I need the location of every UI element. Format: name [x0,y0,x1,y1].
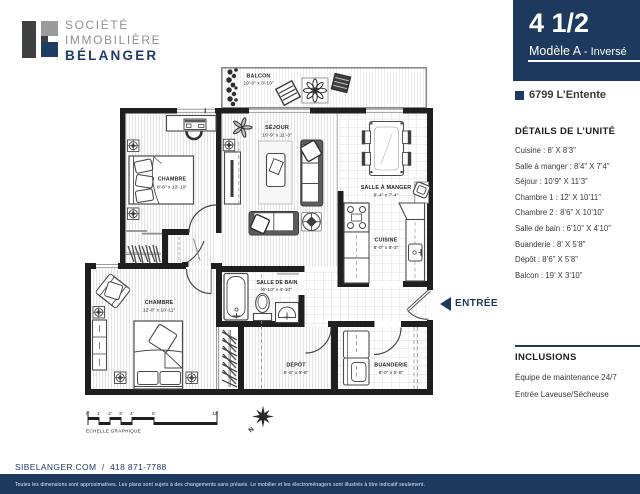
svg-text:BALCON: BALCON [247,74,271,80]
svg-text:SÉJOUR: SÉJOUR [265,123,289,131]
svg-text:DÉPÔT: DÉPÔT [286,361,306,369]
svg-text:ÉCHELLE GRAPHIQUE: ÉCHELLE GRAPHIQUE [86,428,141,434]
svg-text:4': 4' [130,411,134,417]
svg-text:8'-6" x 5'-8": 8'-6" x 5'-8" [284,370,309,376]
svg-text:10'-9" x 11'-3": 10'-9" x 11'-3" [262,133,292,139]
svg-text:1': 1' [97,411,101,417]
svg-text:6': 6' [152,411,156,417]
svg-text:SALLE À MANGER: SALLE À MANGER [361,184,412,191]
svg-text:8'-4" x 7'-4": 8'-4" x 7'-4" [374,193,399,199]
svg-text:12'-0" x 10'-11": 12'-0" x 10'-11" [143,308,176,314]
svg-text:8'-0" x 8'-3": 8'-0" x 8'-3" [374,245,399,251]
svg-text:3': 3' [119,411,123,417]
svg-text:CUISINE: CUISINE [375,238,398,244]
svg-text:CHAMBRE: CHAMBRE [145,300,174,306]
svg-text:2': 2' [108,411,112,417]
svg-text:CHAMBRE: CHAMBRE [158,177,187,183]
svg-text:BUANDERIE: BUANDERIE [374,363,408,369]
svg-text:6'-10" x 4'-10": 6'-10" x 4'-10" [262,287,292,293]
svg-text:19'-0" x 3'-10": 19'-0" x 3'-10" [243,81,273,87]
svg-text:SALLE DE BAIN: SALLE DE BAIN [256,280,297,286]
svg-text:8'-0" x 5'-8": 8'-0" x 5'-8" [379,370,404,376]
svg-text:8'-6" x 10'-10": 8'-6" x 10'-10" [157,185,187,191]
svg-text:N: N [247,426,255,435]
